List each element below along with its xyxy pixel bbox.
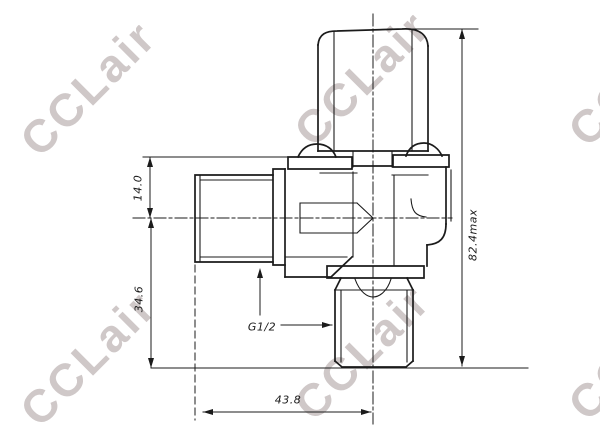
valve-technical-drawing: CCLair CCLair CCLair CCLair CCLair CCLai… xyxy=(0,0,600,425)
right-cap-dome xyxy=(406,143,442,156)
left-bonnet-flange xyxy=(288,157,352,169)
bottom-threaded-port xyxy=(335,278,413,290)
valve-outline-svg xyxy=(0,0,600,425)
dimension-label-43-8: 43.8 xyxy=(275,394,302,407)
port-washer xyxy=(273,169,285,265)
right-bonnet-flange xyxy=(393,155,449,167)
bottom-port-thread-lines xyxy=(335,290,413,362)
knob-side-lines xyxy=(334,30,412,151)
leader-lines-g1-2 xyxy=(260,270,332,325)
dimension-label-82-4-max: 82.4max xyxy=(467,209,480,261)
dimension-label-14-0: 14.0 xyxy=(132,175,145,202)
dimension-label-34-6: 34.6 xyxy=(133,286,146,313)
thread-label-g1-2: G1/2 xyxy=(248,321,276,334)
